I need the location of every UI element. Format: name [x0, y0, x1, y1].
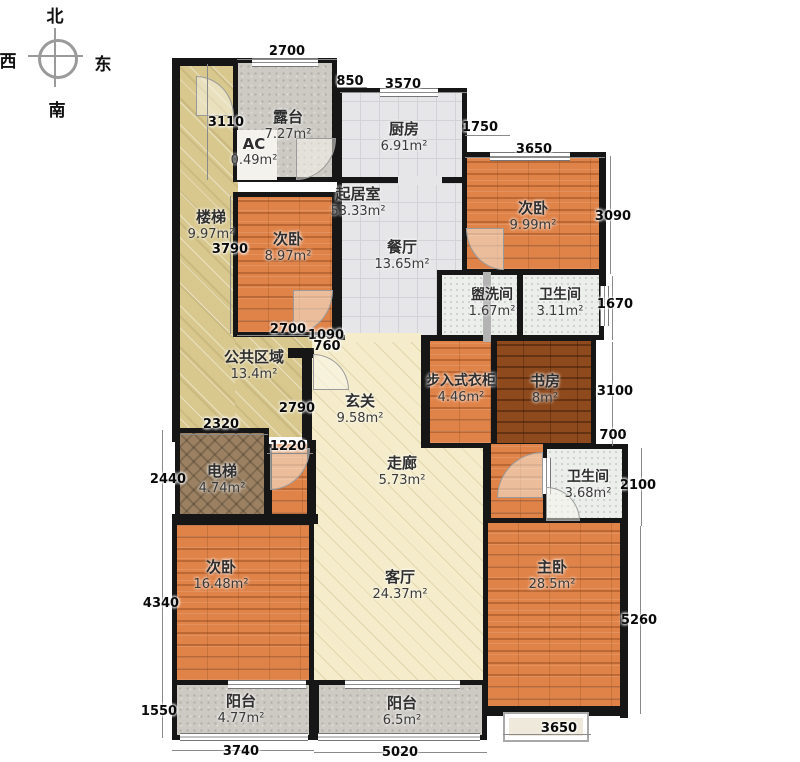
room-name: 阳台: [218, 690, 265, 711]
room-label-bath-north: 卫生间 3.11m²: [537, 284, 584, 319]
room-label-public: 公共区域 13.4m²: [224, 346, 284, 382]
room-name: 公共区域: [224, 346, 284, 367]
dimension-label: 1220: [270, 439, 306, 454]
dimension-label: 5020: [382, 745, 418, 760]
room-label-master: 主卧 28.5m²: [529, 556, 576, 592]
room-label-balcony-west: 阳台 4.77m²: [218, 690, 265, 726]
room-area: 1.67m²: [469, 304, 516, 319]
wall-segment: [172, 514, 318, 524]
room-name: 玄关: [337, 390, 384, 411]
room-label-dining: 餐厅 13.65m²: [374, 236, 429, 272]
dimension-label: 2100: [620, 478, 656, 493]
room-area: 9.58m²: [337, 411, 384, 426]
compass-east-label: 东: [95, 50, 112, 75]
dimension-line: [465, 157, 605, 158]
compass-south-label: 南: [49, 96, 66, 121]
room-label-corridor: 走廊 5.73m²: [379, 452, 426, 488]
wall-segment: [483, 444, 491, 522]
window: [318, 733, 480, 741]
room-master: [483, 518, 628, 715]
room-label-living: 起居室 53.33m²: [330, 183, 385, 219]
dimension-label: 3570: [385, 77, 421, 92]
room-area: 16.48m²: [193, 577, 248, 592]
room-area: 0.49m²: [231, 153, 278, 168]
room-name: 起居室: [330, 183, 385, 204]
room-area: 3.11m²: [537, 304, 584, 319]
wall-segment: [172, 58, 238, 66]
room-area: 5.73m²: [379, 473, 426, 488]
dimension-label: 2790: [279, 401, 315, 416]
dimension-label: 850: [336, 74, 363, 89]
room-name: 次卧: [265, 228, 312, 249]
room-area: 6.91m²: [381, 139, 428, 154]
window: [180, 733, 308, 741]
dimension-line: [465, 135, 510, 136]
room-area: 6.5m²: [383, 713, 422, 728]
room-area: 24.37m²: [372, 587, 427, 602]
compass-west-label: 西: [0, 47, 17, 72]
room-label-study: 书房 8m²: [530, 370, 560, 406]
floor-plan: 北 西 东 南: [0, 0, 800, 762]
dimension-label: 3740: [223, 744, 259, 759]
dimension-label: 3790: [212, 242, 248, 257]
room-bedroom-southwest: [172, 520, 314, 685]
room-name: 次卧: [193, 556, 248, 577]
dimension-line: [180, 434, 268, 435]
compass-circle-icon: [38, 39, 78, 79]
room-label-kitchen: 厨房 6.91m²: [381, 118, 428, 154]
room-name: AC: [231, 135, 278, 153]
room-name: 厨房: [381, 118, 428, 139]
room-name: 主卧: [529, 556, 576, 577]
room-label-living-room: 客厅 24.37m²: [372, 566, 427, 602]
dimension-line: [237, 59, 337, 60]
room-label-ac: AC 0.49m²: [231, 135, 278, 168]
dimension-label: 760: [313, 339, 340, 354]
room-name: 次卧: [510, 197, 557, 218]
room-area: 28.5m²: [529, 577, 576, 592]
room-name: 餐厅: [374, 236, 429, 257]
room-name: 走廊: [379, 452, 426, 473]
room-name: 电梯: [199, 460, 246, 481]
compass-axis-vertical: [54, 28, 56, 87]
room-name: 盥洗间: [469, 284, 516, 304]
wall-opening-dining-foyer: [345, 333, 421, 342]
room-name: 楼梯: [188, 206, 235, 227]
dimension-label: 3100: [597, 384, 633, 399]
room-area: 13.65m²: [374, 257, 429, 272]
room-name: 阳台: [383, 692, 422, 713]
dimension-label: 1750: [462, 120, 498, 135]
room-area: 53.33m²: [330, 204, 385, 219]
room-name: 露台: [265, 106, 312, 127]
window: [345, 680, 460, 689]
dimension-label: 3110: [208, 115, 244, 130]
dimension-label: 2320: [203, 417, 239, 432]
dimension-line: [340, 92, 467, 93]
room-label-bedroom-northwest: 次卧 8.97m²: [265, 228, 312, 264]
dimension-label: 700: [599, 428, 626, 443]
wall-segment: [172, 58, 180, 442]
room-area: 9.97m²: [188, 227, 235, 242]
dimension-label: 2700: [270, 322, 306, 337]
dimension-label: 3650: [516, 142, 552, 157]
dimension-label: 3090: [595, 209, 631, 224]
room-label-walkin-closet: 步入式衣柜 4.46m²: [426, 370, 496, 405]
room-label-stairs: 楼梯 9.97m²: [188, 206, 235, 242]
dimension-label: 5260: [621, 613, 657, 628]
wall-opening-kitchen: [398, 176, 442, 185]
room-name: 客厅: [372, 566, 427, 587]
room-label-washroom: 盥洗间 1.67m²: [469, 284, 516, 319]
room-label-bedroom-southwest: 次卧 16.48m²: [193, 556, 248, 592]
compass: 北 西 东 南: [0, 0, 120, 120]
wall-segment: [302, 350, 312, 440]
room-area: 4.74m²: [199, 481, 246, 496]
dimension-label: 3650: [541, 721, 577, 736]
room-area: 13.4m²: [224, 367, 284, 382]
dimension-label: 1550: [141, 704, 177, 719]
room-name: 步入式衣柜: [426, 370, 496, 390]
dimension-label: 2700: [269, 44, 305, 59]
compass-north-label: 北: [47, 2, 64, 27]
room-name: 书房: [530, 370, 560, 391]
room-area: 8m²: [530, 391, 560, 406]
window: [228, 680, 306, 689]
room-label-elevator: 电梯 4.74m²: [199, 460, 246, 496]
wall-segment: [288, 348, 314, 358]
room-label-bath-east: 卫生间 3.68m²: [565, 466, 612, 501]
room-name: 卫生间: [565, 466, 612, 486]
room-area: 8.97m²: [265, 249, 312, 264]
room-area: 9.99m²: [510, 218, 557, 233]
room-label-bedroom-northeast: 次卧 9.99m²: [510, 197, 557, 233]
dimension-label: 1670: [597, 297, 633, 312]
dimension-label: 4340: [143, 596, 179, 611]
room-area: 4.46m²: [426, 390, 496, 405]
room-label-foyer: 玄关 9.58m²: [337, 390, 384, 426]
room-area: 4.77m²: [218, 711, 265, 726]
room-area: 3.68m²: [565, 486, 612, 501]
room-name: 卫生间: [537, 284, 584, 304]
dimension-label: 2440: [150, 472, 186, 487]
room-label-balcony-east: 阳台 6.5m²: [383, 692, 422, 728]
